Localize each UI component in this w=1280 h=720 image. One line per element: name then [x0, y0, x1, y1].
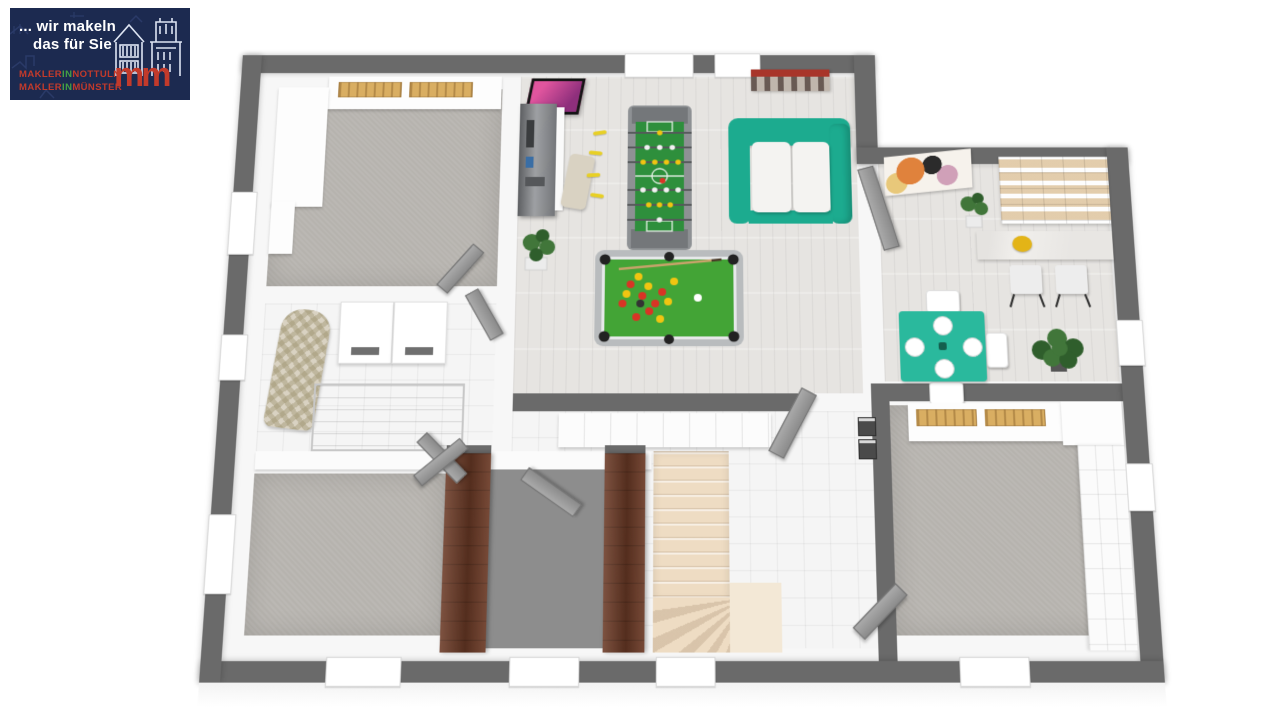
brown-door-left	[439, 453, 491, 652]
window-bottom-2	[509, 657, 580, 687]
washer-vent	[351, 347, 379, 355]
logo-slogan-line1: ... wir makeln	[19, 18, 116, 35]
hall-sideboard	[558, 413, 771, 447]
caption2-city: MÜNSTER	[72, 82, 122, 93]
window-bottom-3	[656, 657, 716, 687]
sofa	[728, 118, 852, 223]
staircase-flight	[653, 451, 730, 601]
cabinet-slot-2	[526, 157, 534, 168]
kitchen-shelf-unit	[998, 157, 1111, 224]
plate-west	[904, 337, 925, 357]
window-left-3	[203, 514, 236, 594]
caption2-in: IN	[62, 82, 72, 93]
sofa-cushion-left	[752, 142, 792, 212]
wall-box-1	[858, 417, 877, 436]
caption2-makler: MAKLER	[19, 82, 62, 93]
caption1-in: IN	[62, 69, 72, 80]
potted-plant-large	[1020, 321, 1093, 378]
floorplan	[197, 55, 1166, 706]
floorplan-3d	[222, 34, 1142, 696]
potted-plant-kitchen	[955, 188, 992, 229]
window-bottom-1	[325, 657, 402, 687]
drying-rack	[311, 383, 465, 451]
brand-logo: ... wir makelndas für Sie mm MAKLERINNOT…	[10, 8, 190, 100]
plate-north	[933, 316, 954, 335]
kitchen-south-wall	[871, 383, 1125, 401]
kitchen-counter	[976, 231, 1113, 259]
topleft-wardrobe	[271, 87, 329, 206]
stool-leg	[1010, 294, 1016, 307]
plate-south	[934, 359, 955, 379]
caption1-city: NOTTULN	[72, 69, 120, 80]
topleft-wardrobe-low	[268, 201, 295, 254]
plate-east	[962, 337, 983, 357]
pool-table	[592, 248, 746, 348]
dryer	[392, 302, 448, 364]
sofa-seat-base	[749, 210, 833, 223]
dining-table	[899, 311, 988, 381]
stool-seat	[1010, 265, 1043, 294]
logo-monogram: mm	[114, 58, 168, 92]
window-bottom-4	[959, 657, 1031, 687]
potted-plant-gameroom	[516, 224, 558, 273]
washer	[337, 302, 394, 364]
gameroom-south-wall	[513, 393, 801, 411]
window-left-1	[227, 192, 258, 255]
staircase-landing	[730, 583, 783, 653]
dining-chair-south	[929, 382, 964, 406]
logo-slogan-line2: das für Sie	[19, 36, 116, 54]
stool-leg	[1039, 294, 1046, 307]
floorplan-stage: ... wir makelndas für Sie mm MAKLERINNOT…	[0, 0, 1280, 720]
dining-chair-north	[926, 290, 961, 313]
sofa-arm-right	[829, 124, 853, 224]
bar-stool-1	[1008, 265, 1046, 307]
bottomright-shelf-books-1	[916, 409, 977, 426]
cabinet-slot-3	[525, 177, 545, 186]
brown-door-right	[603, 453, 646, 652]
metal-cabinet	[518, 104, 557, 216]
sofa-cushion-right	[792, 142, 830, 212]
topleft-shelf-books-1	[338, 82, 402, 97]
window-left-2	[218, 334, 248, 380]
logo-caption-line2: MAKLERINMÜNSTER	[19, 82, 122, 95]
bar-stool-2	[1053, 265, 1091, 307]
window-right-2	[1125, 463, 1156, 511]
logo-captions: MAKLERINNOTTULN MAKLERINMÜNSTER	[19, 69, 122, 94]
caption1-makler: MAKLER	[19, 69, 62, 80]
stool-leg	[1084, 294, 1091, 307]
bottomright-shelf-books-2	[985, 409, 1046, 426]
room-bottomleft-floor	[244, 474, 446, 636]
sofa-arm-left	[728, 124, 750, 224]
window-top-1	[625, 53, 694, 77]
panoramic-artwork	[751, 69, 830, 91]
topleft-shelf-books-2	[409, 82, 473, 97]
stool-leg	[1055, 294, 1060, 307]
dryer-vent	[405, 347, 433, 355]
bottomright-cabinet-north	[1061, 401, 1124, 445]
stool-seat	[1055, 265, 1088, 294]
window-right-1	[1116, 320, 1146, 366]
fruit-bowl	[1012, 236, 1033, 252]
table-centerpiece	[939, 342, 947, 350]
foosball-table	[627, 100, 692, 259]
cabinet-slot-1	[526, 120, 534, 147]
logo-slogan: ... wir makelndas für Sie	[19, 18, 116, 54]
dining-chair-east	[985, 333, 1009, 368]
logo-caption-line1: MAKLERINNOTTULN	[19, 69, 122, 82]
wall-box-2	[858, 439, 877, 459]
